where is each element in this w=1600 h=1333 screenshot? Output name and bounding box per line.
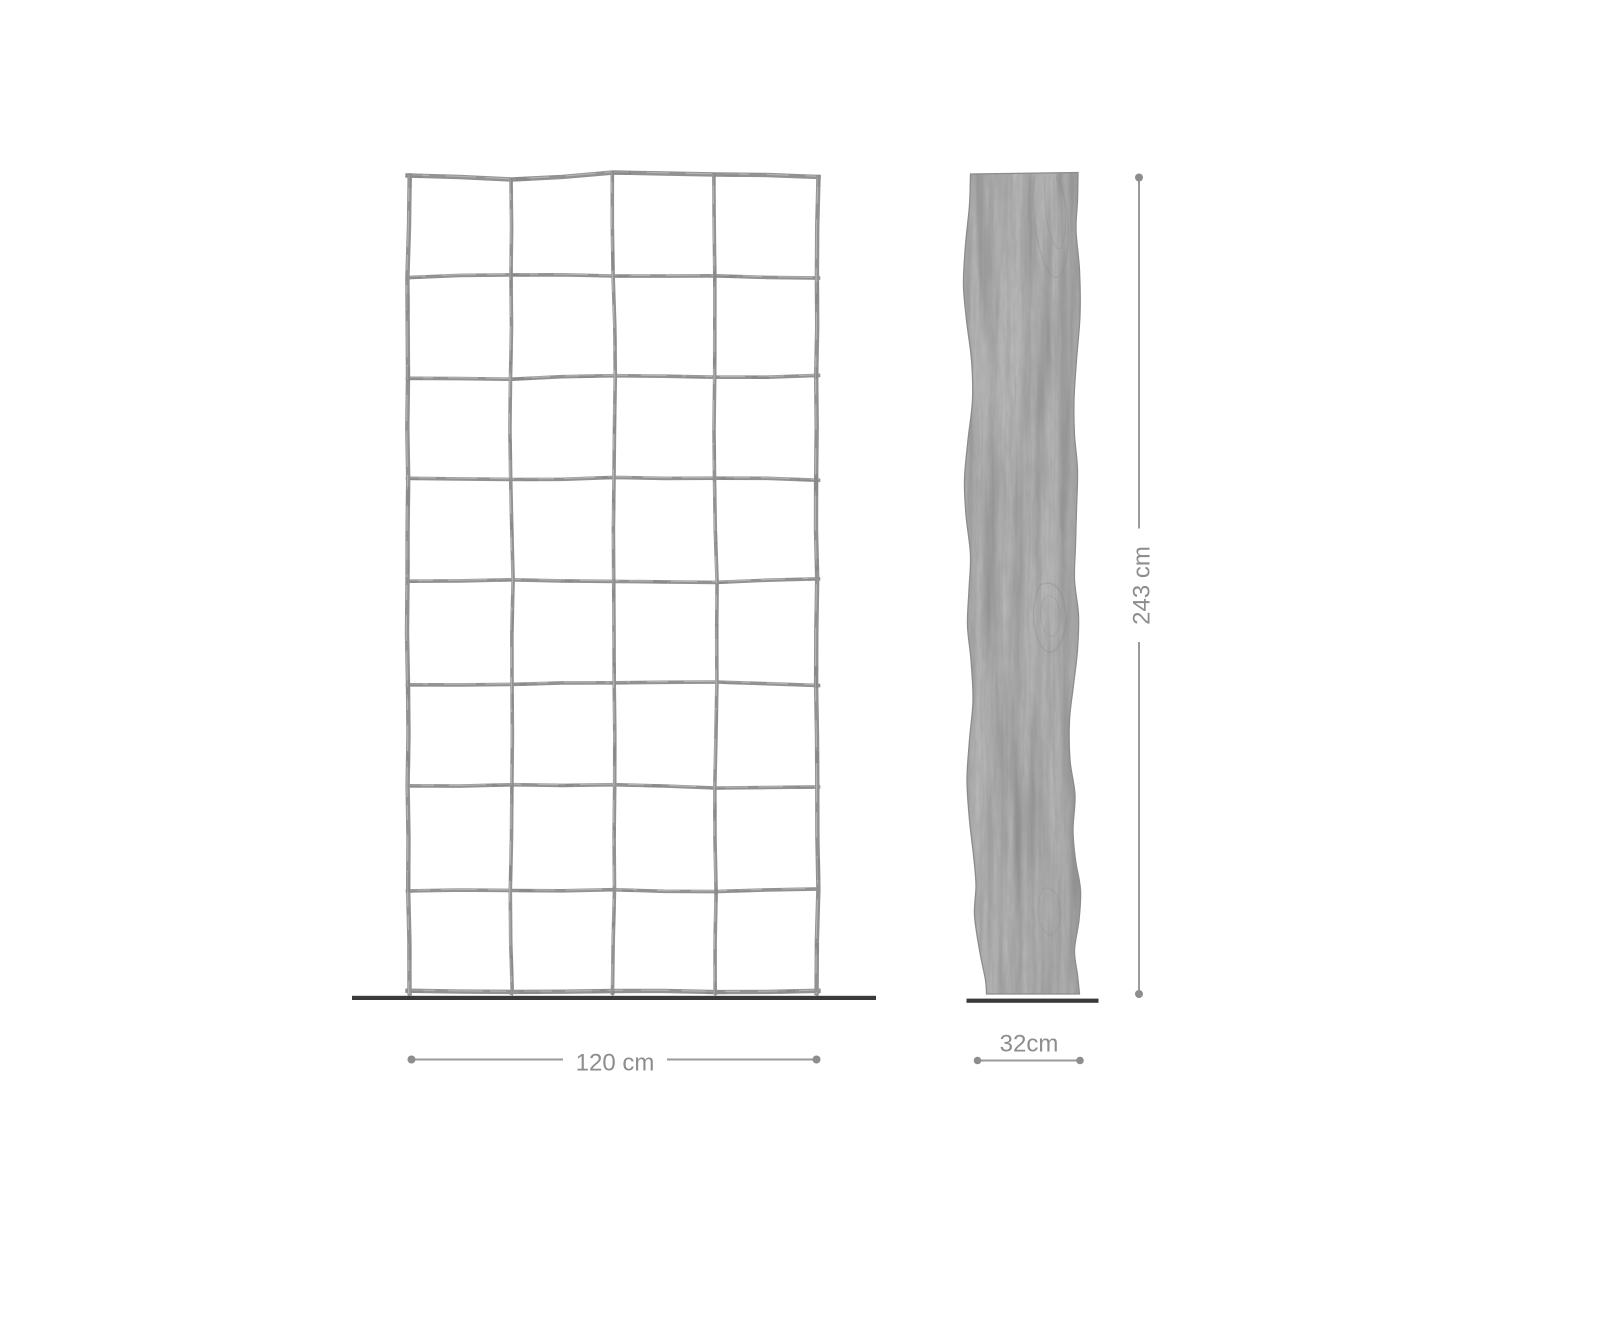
svg-text:32cm: 32cm: [1000, 1031, 1059, 1058]
svg-text:243 cm: 243 cm: [1129, 546, 1156, 625]
svg-text:120 cm: 120 cm: [576, 1050, 655, 1077]
